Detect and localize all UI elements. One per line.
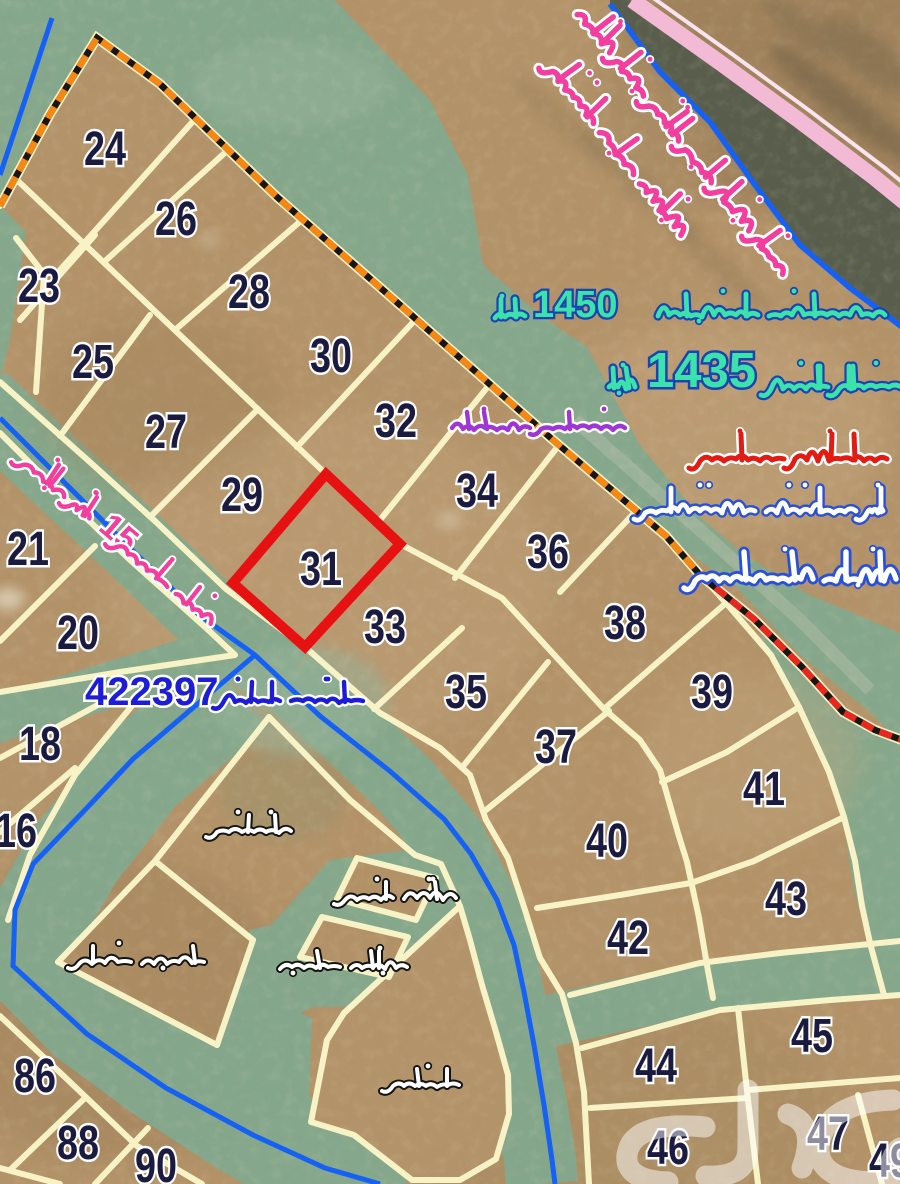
svg-text:88: 88	[57, 1117, 99, 1170]
svg-text:27: 27	[145, 406, 187, 459]
svg-text:33: 33	[364, 601, 406, 654]
svg-text:1435: 1435	[647, 344, 756, 398]
svg-text:38: 38	[604, 597, 646, 650]
svg-text:37: 37	[535, 721, 577, 774]
svg-text:32: 32	[375, 395, 417, 448]
svg-text:30: 30	[310, 330, 352, 383]
svg-text:90: 90	[135, 1140, 177, 1184]
svg-text:34: 34	[456, 465, 498, 518]
svg-text:422397: 422397	[85, 670, 218, 714]
svg-text:23: 23	[18, 260, 60, 313]
svg-text:44: 44	[635, 1040, 677, 1093]
svg-text:16: 16	[0, 805, 37, 858]
svg-text:1450: 1450	[533, 284, 618, 326]
svg-text:28: 28	[228, 266, 270, 319]
svg-text:21: 21	[7, 523, 49, 576]
svg-text:25: 25	[72, 336, 114, 389]
svg-text:39: 39	[691, 666, 733, 719]
svg-text:24: 24	[84, 123, 126, 176]
svg-text:35: 35	[445, 666, 487, 719]
svg-text:18: 18	[19, 718, 61, 771]
svg-text:45: 45	[791, 1010, 833, 1063]
svg-text:29: 29	[221, 469, 263, 522]
svg-text:40: 40	[586, 815, 628, 868]
svg-text:26: 26	[155, 193, 197, 246]
svg-text:43: 43	[765, 873, 807, 926]
svg-text:36: 36	[527, 526, 569, 579]
svg-text:41: 41	[743, 763, 785, 816]
svg-text:86: 86	[14, 1050, 56, 1103]
svg-text:20: 20	[57, 607, 99, 660]
svg-text:42: 42	[607, 912, 649, 965]
svg-text:31: 31	[300, 543, 342, 596]
